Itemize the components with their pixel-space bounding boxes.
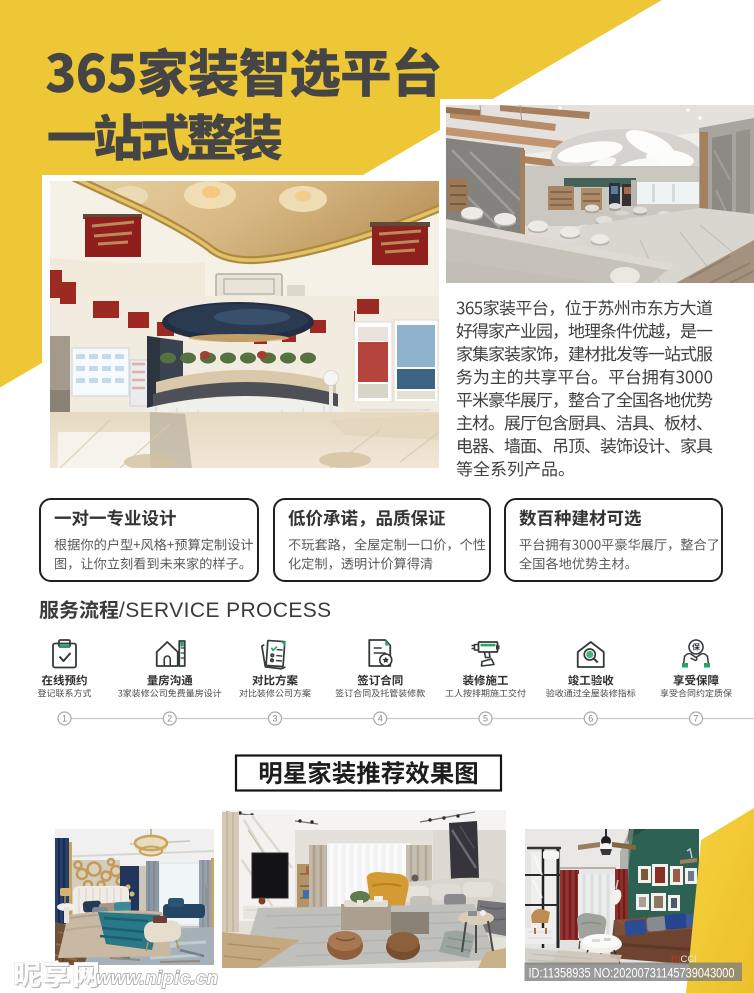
svg-text:www.nipic.cn: www.nipic.cn xyxy=(96,967,218,988)
svg-text:4: 4 xyxy=(378,714,383,724)
svg-text:/SERVICE PROCESS: /SERVICE PROCESS xyxy=(119,599,332,622)
svg-text:2: 2 xyxy=(167,714,172,724)
svg-text:7: 7 xyxy=(693,714,698,724)
svg-text:3: 3 xyxy=(272,714,277,724)
svg-text:5: 5 xyxy=(483,714,488,724)
svg-text:6: 6 xyxy=(588,714,593,724)
svg-text:1: 1 xyxy=(62,714,67,724)
svg-text:ID:11358935 NO:202007311457390: ID:11358935 NO:20200731145739043000 xyxy=(529,965,735,980)
